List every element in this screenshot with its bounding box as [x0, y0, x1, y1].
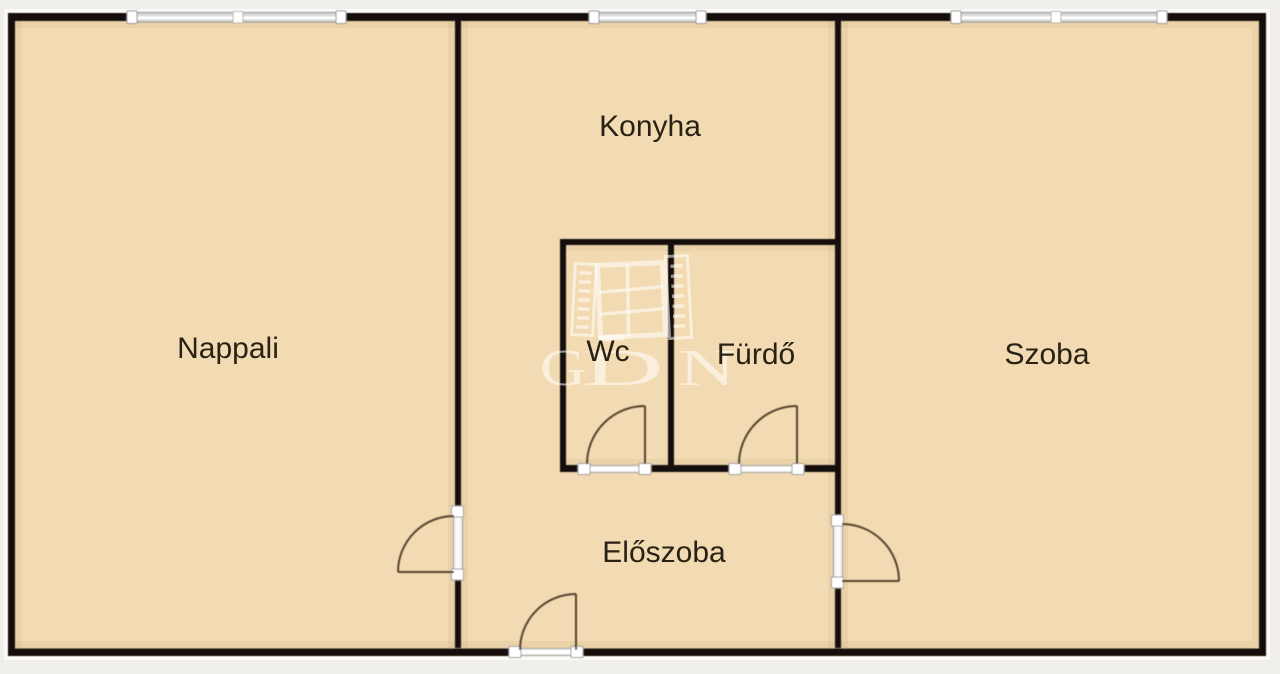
svg-text:Előszoba: Előszoba — [602, 536, 726, 569]
svg-text:Wc: Wc — [586, 335, 629, 368]
svg-text:Konyha: Konyha — [599, 110, 701, 143]
svg-text:Szoba: Szoba — [1004, 338, 1089, 371]
svg-text:G: G — [540, 339, 586, 397]
svg-text:Nappali: Nappali — [177, 332, 279, 365]
svg-text:Fürdő: Fürdő — [717, 338, 795, 371]
